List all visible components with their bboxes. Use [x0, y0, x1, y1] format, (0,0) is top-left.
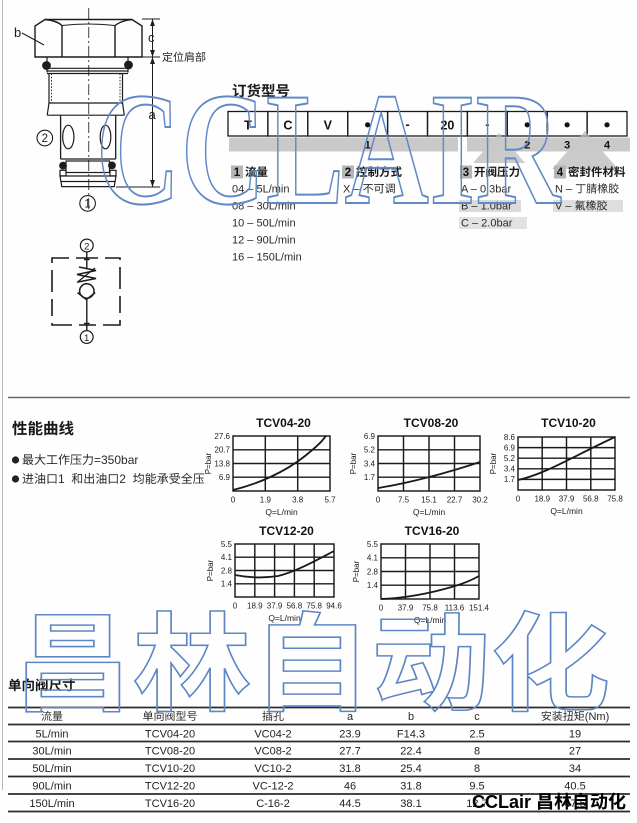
- svg-text:0: 0: [379, 604, 384, 613]
- svg-text:0: 0: [376, 496, 381, 505]
- svg-text:18.9: 18.9: [247, 602, 263, 611]
- svg-text:1: 1: [58, 472, 65, 486]
- svg-text:3.4: 3.4: [364, 459, 376, 468]
- svg-text:5.5: 5.5: [367, 540, 379, 549]
- svg-text:c: c: [474, 711, 480, 723]
- svg-text:8: 8: [474, 746, 480, 758]
- svg-text:13.8: 13.8: [214, 459, 230, 468]
- svg-text:18.9: 18.9: [534, 495, 550, 504]
- svg-text:CCLair: CCLair: [472, 792, 531, 812]
- svg-text:VC-12-2: VC-12-2: [253, 781, 294, 793]
- svg-text:0: 0: [231, 496, 236, 505]
- svg-text:3.4: 3.4: [504, 465, 516, 474]
- svg-text:5.2: 5.2: [364, 446, 376, 455]
- svg-text:TCV12-20: TCV12-20: [145, 781, 195, 793]
- svg-text:37.9: 37.9: [267, 602, 283, 611]
- svg-text:b: b: [14, 25, 21, 40]
- svg-text:4: 4: [604, 140, 611, 152]
- svg-text:27.7: 27.7: [339, 746, 360, 758]
- svg-text:37.9: 37.9: [398, 604, 414, 613]
- svg-text:5.7: 5.7: [324, 496, 336, 505]
- svg-text:1: 1: [84, 333, 89, 344]
- svg-text:1.9: 1.9: [260, 496, 272, 505]
- svg-text:25.4: 25.4: [400, 763, 421, 775]
- svg-text:5.5: 5.5: [221, 540, 233, 549]
- svg-text:VC04-2: VC04-2: [254, 729, 291, 741]
- svg-text:2: 2: [42, 133, 48, 145]
- svg-text:TCV04-20: TCV04-20: [256, 416, 311, 430]
- svg-text:30.2: 30.2: [472, 496, 488, 505]
- svg-text:2: 2: [84, 241, 89, 252]
- svg-text:Q=L/min: Q=L/min: [268, 613, 301, 623]
- svg-text:3.8: 3.8: [292, 496, 304, 505]
- svg-text:1.7: 1.7: [504, 475, 516, 484]
- svg-text:37.9: 37.9: [559, 495, 575, 504]
- svg-text:75.8: 75.8: [607, 495, 623, 504]
- svg-text:TCV08-20: TCV08-20: [404, 416, 459, 430]
- svg-text:22.7: 22.7: [447, 496, 463, 505]
- svg-text:9.5: 9.5: [469, 781, 484, 793]
- svg-text:P=bar: P=bar: [349, 452, 358, 474]
- svg-text:7.5: 7.5: [398, 496, 410, 505]
- svg-text:TCV16-20: TCV16-20: [145, 798, 195, 810]
- svg-text:94.6: 94.6: [326, 602, 342, 611]
- svg-text:2.8: 2.8: [367, 567, 379, 576]
- svg-text:34: 34: [569, 763, 581, 775]
- svg-text:2: 2: [119, 472, 126, 486]
- svg-text:1: 1: [84, 199, 90, 211]
- svg-text:TCV10-20: TCV10-20: [145, 763, 195, 775]
- svg-text:VC10-2: VC10-2: [254, 763, 291, 775]
- svg-text:46: 46: [344, 781, 356, 793]
- svg-text:(Nm): (Nm): [585, 711, 609, 723]
- svg-text:=350bar: =350bar: [94, 453, 138, 467]
- svg-text:6.9: 6.9: [504, 443, 516, 452]
- svg-text:TCV12-20: TCV12-20: [259, 524, 314, 538]
- svg-text:F14.3: F14.3: [397, 729, 425, 741]
- svg-text:27: 27: [569, 746, 581, 758]
- svg-text:TCV04-20: TCV04-20: [145, 729, 195, 741]
- svg-text:151.4: 151.4: [469, 604, 490, 613]
- svg-text:P=bar: P=bar: [204, 452, 213, 474]
- svg-text:5.2: 5.2: [504, 454, 516, 463]
- svg-text:27.6: 27.6: [214, 432, 230, 441]
- svg-text:2.8: 2.8: [221, 566, 233, 575]
- svg-text:1.7: 1.7: [364, 473, 376, 482]
- svg-text:40.5: 40.5: [564, 781, 585, 793]
- svg-text:16 – 150L/min: 16 – 150L/min: [232, 252, 302, 264]
- svg-text:TCV16-20: TCV16-20: [405, 524, 460, 538]
- svg-text:6.9: 6.9: [364, 432, 376, 441]
- svg-text:22.4: 22.4: [400, 746, 421, 758]
- svg-text:50L/min: 50L/min: [32, 763, 71, 775]
- svg-text:0: 0: [516, 495, 521, 504]
- svg-text:1.4: 1.4: [221, 580, 233, 589]
- svg-text:150L/min: 150L/min: [29, 798, 74, 810]
- svg-text:TCV10-20: TCV10-20: [541, 416, 596, 430]
- svg-text:CCLAIR: CCLAIR: [96, 61, 561, 238]
- svg-text:P=bar: P=bar: [489, 452, 498, 474]
- svg-text:6.9: 6.9: [219, 473, 231, 482]
- svg-text:31.8: 31.8: [339, 763, 360, 775]
- svg-text:b: b: [408, 711, 414, 723]
- svg-text:TCV08-20: TCV08-20: [145, 746, 195, 758]
- svg-text:90L/min: 90L/min: [32, 781, 71, 793]
- svg-text:31.8: 31.8: [400, 781, 421, 793]
- svg-text:P=bar: P=bar: [352, 560, 361, 582]
- svg-text:a: a: [347, 711, 354, 723]
- svg-text:C-16-2: C-16-2: [256, 798, 290, 810]
- svg-text:56.8: 56.8: [583, 495, 599, 504]
- svg-text:44.5: 44.5: [339, 798, 360, 810]
- svg-text:75.8: 75.8: [306, 602, 322, 611]
- svg-text:30L/min: 30L/min: [32, 746, 71, 758]
- svg-text:Q=L/min: Q=L/min: [265, 507, 298, 517]
- svg-text:19: 19: [569, 729, 581, 741]
- svg-text:15.1: 15.1: [421, 496, 437, 505]
- svg-text:c: c: [148, 30, 155, 45]
- svg-text:4.1: 4.1: [367, 554, 379, 563]
- svg-text:Q=L/min: Q=L/min: [550, 506, 583, 516]
- svg-text:23.9: 23.9: [339, 729, 360, 741]
- svg-text:1.4: 1.4: [367, 581, 379, 590]
- svg-text:Q=L/min: Q=L/min: [413, 507, 446, 517]
- svg-text:P=bar: P=bar: [206, 559, 215, 581]
- svg-text:38.1: 38.1: [400, 798, 421, 810]
- svg-text:56.8: 56.8: [287, 602, 303, 611]
- svg-text:5L/min: 5L/min: [35, 729, 68, 741]
- svg-text:0: 0: [233, 602, 238, 611]
- svg-text:2.5: 2.5: [469, 729, 484, 741]
- svg-text:4.1: 4.1: [221, 553, 233, 562]
- svg-text:8.6: 8.6: [504, 433, 516, 442]
- svg-text:20.7: 20.7: [214, 446, 230, 455]
- svg-text:113.6: 113.6: [445, 604, 465, 613]
- svg-text:VC08-2: VC08-2: [254, 746, 291, 758]
- svg-text:75.8: 75.8: [422, 604, 438, 613]
- svg-text:3: 3: [564, 140, 570, 152]
- svg-text:8: 8: [474, 763, 480, 775]
